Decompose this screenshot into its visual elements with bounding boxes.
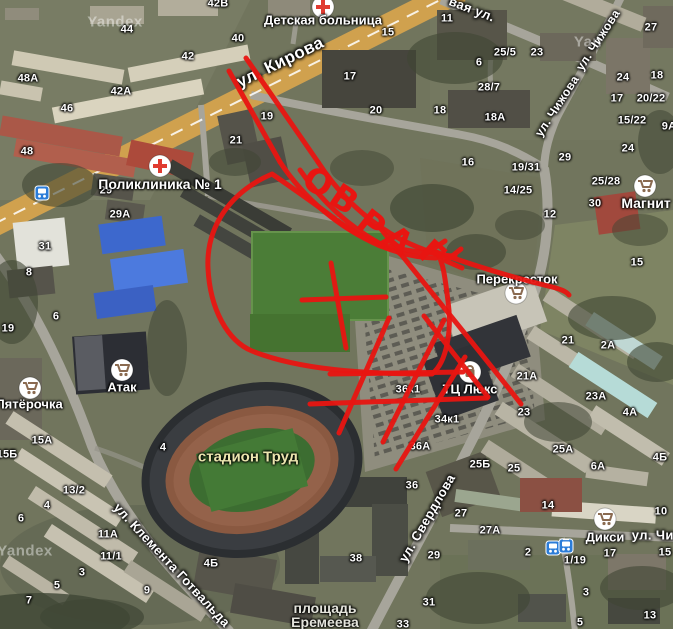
building-number-label: 3 bbox=[79, 568, 85, 579]
building-number-label: 48А bbox=[18, 74, 39, 85]
poi-label[interactable]: Поликлиника № 1 bbox=[98, 177, 221, 191]
building-number-label: 25/5 bbox=[494, 48, 516, 59]
poi-label[interactable]: Магнит bbox=[621, 196, 670, 210]
provider-watermark: Yandex bbox=[87, 15, 143, 30]
tram-stop-icon[interactable] bbox=[558, 538, 574, 554]
poi-label[interactable]: Атак bbox=[107, 381, 136, 394]
building-number-label: 40 bbox=[232, 34, 245, 45]
poi-label[interactable]: Перекресток bbox=[476, 273, 557, 286]
building-number-label: 17 bbox=[604, 549, 617, 560]
building-number-label: 18А bbox=[485, 113, 506, 124]
street-label: ул. Чистова bbox=[632, 529, 673, 542]
building-number-label: 30 bbox=[589, 199, 602, 210]
building-number-label: 29 bbox=[559, 153, 572, 164]
building-number-label: 12 bbox=[544, 210, 557, 221]
satellite-map[interactable]: 4442В4248А42А4648401517201819211125/5232… bbox=[0, 0, 673, 629]
building-number-label: 13/2 bbox=[63, 486, 85, 497]
building-number-label: 15/22 bbox=[618, 116, 647, 127]
building-number-label: 4А bbox=[623, 408, 637, 419]
building-number-label: 23 bbox=[531, 48, 544, 59]
map-labels-layer: 4442В4248А42А4648401517201819211125/5232… bbox=[0, 0, 673, 629]
building-number-label: 6 bbox=[18, 514, 24, 525]
building-number-label: 17 bbox=[344, 72, 357, 83]
building-number-label: 42 bbox=[182, 52, 195, 63]
building-number-label: 18 bbox=[434, 106, 447, 117]
building-number-label: 21 bbox=[230, 136, 243, 147]
building-number-label: 31 bbox=[39, 242, 52, 253]
building-number-label: 14 bbox=[542, 501, 555, 512]
building-number-label: 31 bbox=[423, 598, 436, 609]
building-number-label: 9 bbox=[144, 586, 150, 597]
provider-watermark: Yandex bbox=[0, 544, 53, 559]
poi-label[interactable]: ТЦ Люкс bbox=[443, 383, 498, 396]
building-number-label: 5 bbox=[54, 581, 60, 592]
building-number-label: 3 bbox=[583, 588, 589, 599]
building-number-label: 19 bbox=[2, 324, 15, 335]
building-number-label: 15А bbox=[32, 436, 53, 447]
building-number-label: 25/28 bbox=[592, 177, 621, 188]
building-number-label: 21А bbox=[517, 372, 538, 383]
building-number-label: 6 bbox=[476, 58, 482, 69]
building-number-label: 38 bbox=[350, 554, 363, 565]
building-number-label: 36к1 bbox=[396, 385, 421, 396]
building-number-label: 16 bbox=[462, 158, 475, 169]
building-number-label: 29А bbox=[110, 210, 131, 221]
building-number-label: 42В bbox=[208, 0, 229, 10]
building-number-label: 21 bbox=[562, 336, 575, 347]
building-number-label: 2 bbox=[525, 548, 531, 559]
building-number-label: 19/31 bbox=[512, 163, 541, 174]
building-number-label: 15 bbox=[659, 548, 672, 559]
street-label: вая ул. bbox=[447, 0, 496, 24]
building-number-label: 24 bbox=[617, 73, 630, 84]
building-number-label: 25Б bbox=[470, 460, 491, 471]
building-number-label: 10 bbox=[655, 507, 668, 518]
poi-label[interactable]: Пятёрочка bbox=[0, 398, 63, 411]
poi-label[interactable]: Детская больница bbox=[264, 14, 382, 27]
building-number-label: 28/7 bbox=[478, 83, 500, 94]
building-number-label: 5 bbox=[577, 618, 583, 629]
building-number-label: 15Б bbox=[0, 450, 17, 461]
building-number-label: 46 bbox=[61, 104, 74, 115]
building-number-label: 4 bbox=[44, 501, 50, 512]
building-number-label: 42А bbox=[111, 87, 132, 98]
building-number-label: 29 bbox=[428, 551, 441, 562]
building-number-label: 48 bbox=[21, 147, 34, 158]
building-number-label: 25 bbox=[508, 464, 521, 475]
building-number-label: 4Б bbox=[653, 453, 667, 464]
building-number-label: 4 bbox=[160, 443, 166, 454]
building-number-label: 24 bbox=[622, 144, 635, 155]
area-label: площадьЕремеева bbox=[291, 601, 359, 629]
street-label: ул. Кирова bbox=[234, 34, 327, 91]
building-number-label: 11 bbox=[441, 14, 453, 25]
building-number-label: 1/19 bbox=[564, 556, 586, 567]
bus-stop-icon[interactable] bbox=[34, 185, 50, 201]
street-label: ул. Чижова bbox=[533, 73, 581, 138]
building-number-label: 15 bbox=[631, 258, 644, 269]
building-number-label: 11/1 bbox=[100, 552, 122, 563]
building-number-label: 17 bbox=[611, 94, 624, 105]
building-number-label: 34к1 bbox=[435, 415, 460, 426]
building-number-label: 7 bbox=[26, 596, 32, 607]
building-number-label: 27 bbox=[645, 23, 658, 34]
building-number-label: 2А bbox=[601, 341, 615, 352]
building-number-label: 11А bbox=[98, 530, 118, 541]
building-number-label: 6 bbox=[53, 312, 59, 323]
poi-label[interactable]: Дикси bbox=[586, 531, 625, 544]
building-number-label: 9А bbox=[662, 122, 673, 133]
building-number-label: 23 bbox=[518, 408, 531, 419]
building-number-label: 36 bbox=[406, 481, 419, 492]
building-number-label: 27А bbox=[480, 526, 501, 537]
building-number-label: 19 bbox=[261, 112, 274, 123]
building-number-label: 13 bbox=[644, 611, 657, 622]
building-number-label: 15 bbox=[382, 28, 395, 39]
building-number-label: 27 bbox=[455, 509, 468, 520]
building-number-label: 23А bbox=[586, 392, 607, 403]
building-number-label: 36А bbox=[410, 442, 431, 453]
building-number-label: 33 bbox=[397, 620, 410, 629]
building-number-label: 20/22 bbox=[637, 94, 666, 105]
building-number-label: 14/25 bbox=[504, 186, 533, 197]
building-number-label: 25А bbox=[553, 445, 574, 456]
building-number-label: 4Б bbox=[204, 559, 218, 570]
provider-watermark: Yan bbox=[574, 35, 602, 50]
area-label: стадион Труд bbox=[198, 450, 298, 465]
building-number-label: 6А bbox=[591, 462, 605, 473]
building-number-label: 18 bbox=[651, 71, 664, 82]
building-number-label: 8 bbox=[26, 268, 32, 279]
building-number-label: 20 bbox=[370, 106, 383, 117]
